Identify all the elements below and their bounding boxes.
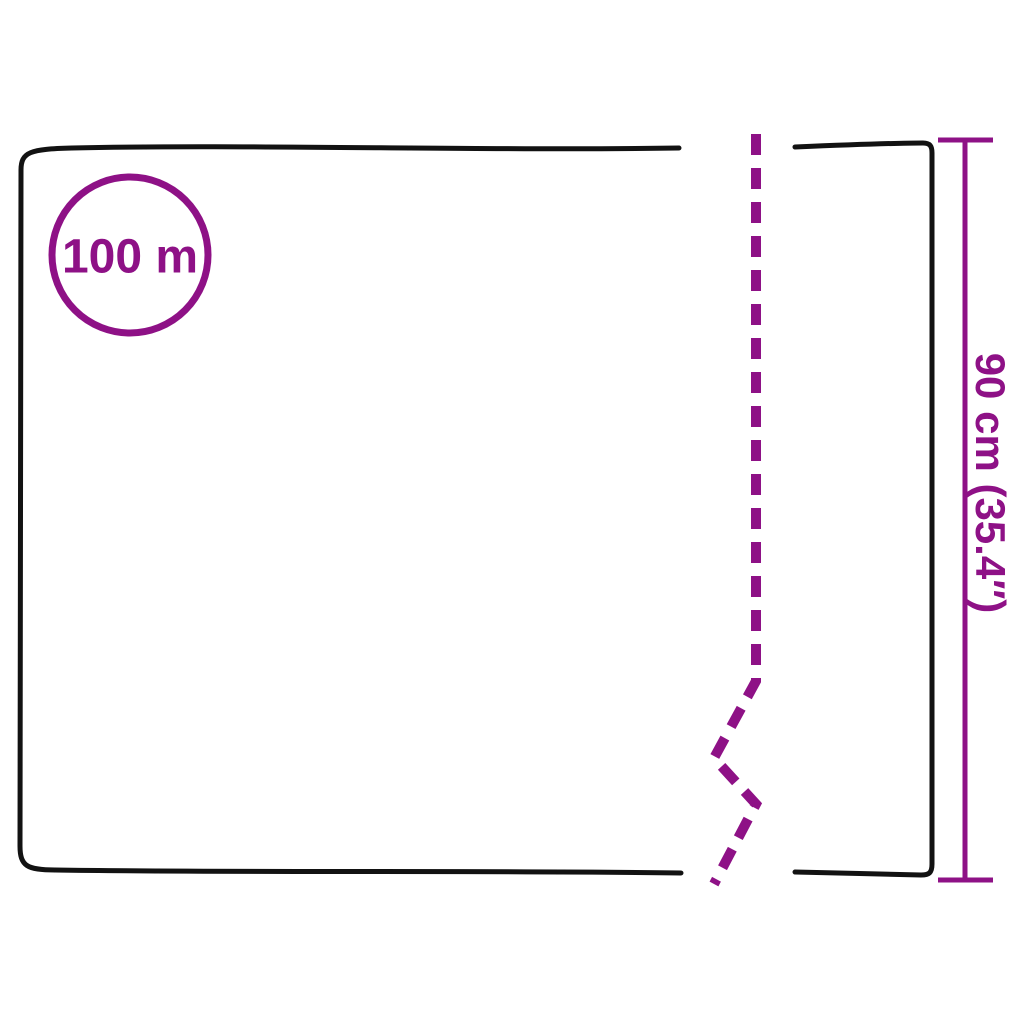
product-dimension-diagram: 100 m 90 cm (35.4″) (0, 0, 1024, 1024)
diagram-canvas (0, 0, 1024, 1024)
width-dimension-label: 90 cm (35.4″) (966, 353, 1014, 614)
length-badge-label: 100 m (62, 230, 198, 285)
break-dashed-line (714, 134, 756, 884)
sheet-outline-right (795, 143, 932, 875)
